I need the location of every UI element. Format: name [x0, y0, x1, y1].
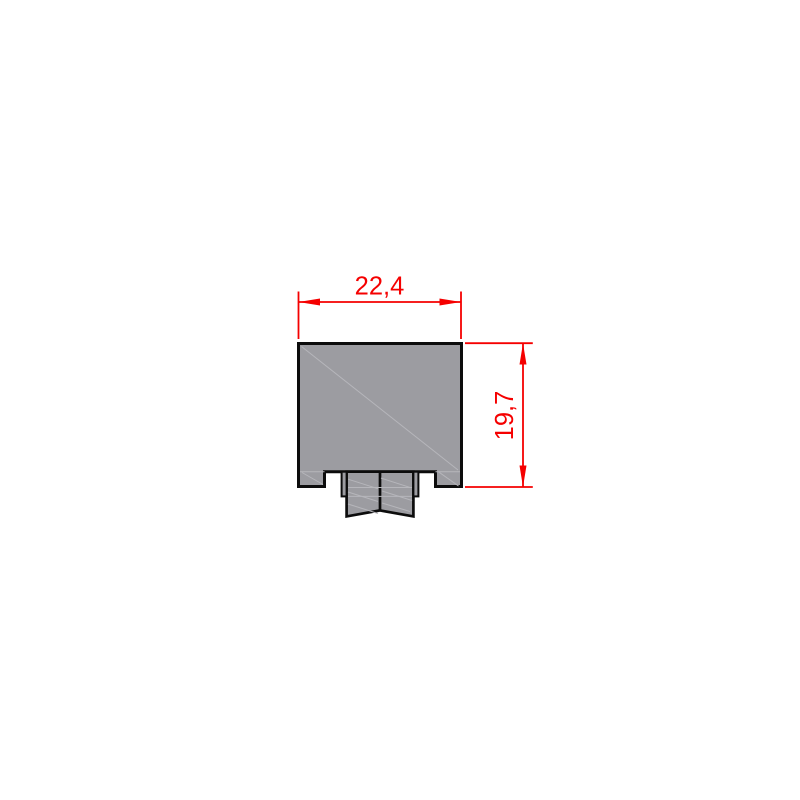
svg-text:19,7: 19,7: [491, 391, 519, 441]
svg-text:22,4: 22,4: [355, 273, 405, 301]
